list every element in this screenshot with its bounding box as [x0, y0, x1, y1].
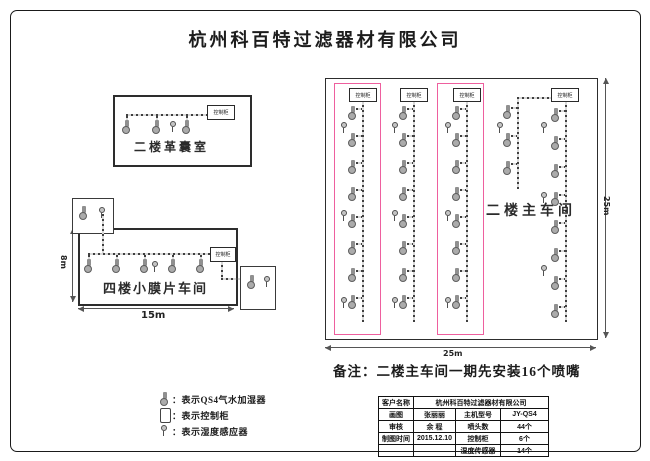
legend-item: ：表示控制柜 [158, 407, 266, 423]
drawing-canvas: 杭州科百特过滤器材有限公司 二楼革囊室 四楼小膜片车间 15m 8m 二楼主车间… [0, 0, 650, 461]
humidity-sensor-icon [392, 122, 398, 133]
humidity-sensor-icon [341, 122, 347, 133]
humidifier-nozzle-icon [182, 120, 191, 134]
humidity-sensor-icon [152, 261, 158, 272]
table-cell: 张丽丽 [414, 409, 456, 421]
legend-label: ：表示控制柜 [172, 409, 229, 422]
remark-note: 备注：二楼主车间一期先安装16个喷嘴 [333, 360, 581, 380]
equipment-box [240, 266, 276, 310]
dimension-line [72, 228, 73, 302]
humidity-sensor-icon [99, 207, 105, 218]
drawing-title: 杭州科百特过滤器材有限公司 [0, 26, 650, 52]
humidifier-nozzle-icon [551, 136, 560, 150]
humidity-sensor-icon [541, 265, 547, 276]
main-workshop-width-dim: 25m [443, 349, 462, 358]
customer-value-cell: 杭州科百特过滤器材有限公司 [414, 397, 549, 409]
pipe [102, 214, 104, 254]
control-cabinet: 控制柜 [400, 88, 428, 102]
humidifier-nozzle-icon [348, 106, 357, 120]
humidifier-nozzle-icon [79, 206, 88, 220]
title-block-table: 客户名称 杭州科百特过滤器材有限公司 画图 张丽丽 主机型号 JY-QS4 审核… [378, 396, 549, 457]
humidifier-nozzle-icon [399, 160, 408, 174]
dimension-line [325, 347, 596, 348]
pipe [362, 100, 364, 322]
main-workshop-height-dim: 25m [602, 196, 611, 215]
humidifier-nozzle-icon [348, 241, 357, 255]
pipe [517, 97, 551, 99]
table-cell: 喷头数 [456, 421, 501, 433]
humidifier-nozzle-icon [140, 259, 149, 273]
humidifier-nozzle-icon [551, 164, 560, 178]
humidifier-nozzle-icon [348, 187, 357, 201]
humidifier-nozzle-icon [399, 187, 408, 201]
control-cabinet: 控制柜 [207, 105, 235, 120]
humidifier-nozzle-icon [551, 304, 560, 318]
humidity-sensor-icon [341, 297, 347, 308]
table-cell: 画图 [379, 409, 414, 421]
humidifier-nozzle-icon [399, 268, 408, 282]
humidifier-nozzle-icon [503, 133, 512, 147]
table-cell: JY-QS4 [501, 409, 549, 421]
pipe [413, 100, 415, 322]
humidifier-nozzle-icon [551, 248, 560, 262]
customer-label-cell: 客户名称 [379, 397, 414, 409]
control-cabinet: 控制柜 [453, 88, 481, 102]
humidity-sensor-icon [392, 297, 398, 308]
humidifier-nozzle-icon [452, 214, 461, 228]
table-cell: 6个 [501, 433, 549, 445]
humidity-sensor-icon [445, 122, 451, 133]
humidifier-nozzle-icon [112, 259, 121, 273]
humidity-sensor-icon [392, 210, 398, 221]
humidifier-nozzle-icon [84, 259, 93, 273]
humidity-sensor-icon [541, 192, 547, 203]
humidity-sensor-icon [341, 210, 347, 221]
humidifier-nozzle-icon [551, 220, 560, 234]
membrane-room-height-dim: 8m [59, 255, 68, 269]
humidifier-nozzle-icon [348, 295, 357, 309]
control-cabinet: 控制柜 [210, 247, 236, 262]
humidifier-nozzle-icon [160, 392, 169, 406]
humidity-sensor-icon [161, 425, 167, 436]
room-membrane-label: 四楼小膜片车间 [103, 278, 208, 297]
table-cell: 余 程 [414, 421, 456, 433]
dimension-line [78, 308, 234, 309]
humidifier-nozzle-icon [452, 160, 461, 174]
legend-item: ：表示QS4气水加湿器 [158, 391, 266, 407]
humidifier-nozzle-icon [503, 105, 512, 119]
table-cell: 2015.12.10 [414, 433, 456, 445]
table-cell: 审核 [379, 421, 414, 433]
table-cell: 14个 [501, 445, 549, 457]
legend-label: ：表示QS4气水加湿器 [172, 393, 266, 406]
table-cell: 湿度传感器 [456, 445, 501, 457]
humidifier-nozzle-icon [348, 268, 357, 282]
humidifier-nozzle-icon [452, 241, 461, 255]
table-cell: 控制柜 [456, 433, 501, 445]
humidity-sensor-icon [445, 297, 451, 308]
humidifier-nozzle-icon [348, 160, 357, 174]
humidifier-nozzle-icon [399, 214, 408, 228]
humidifier-nozzle-icon [348, 214, 357, 228]
humidifier-nozzle-icon [152, 120, 161, 134]
pipe [517, 97, 519, 189]
table-cell: 制图时间 [379, 433, 414, 445]
humidifier-nozzle-icon [452, 295, 461, 309]
humidifier-nozzle-icon [399, 133, 408, 147]
humidifier-nozzle-icon [452, 133, 461, 147]
humidity-sensor-icon [170, 121, 176, 132]
humidifier-nozzle-icon [452, 187, 461, 201]
humidifier-nozzle-icon [399, 295, 408, 309]
humidifier-nozzle-icon [551, 192, 560, 206]
table-cell [414, 445, 456, 457]
table-cell: 主机型号 [456, 409, 501, 421]
room-bladder-label: 二楼革囊室 [134, 138, 209, 155]
humidifier-nozzle-icon [122, 120, 131, 134]
legend-label: ：表示湿度感应器 [172, 425, 248, 438]
pipe [126, 114, 207, 116]
humidifier-nozzle-icon [399, 241, 408, 255]
humidifier-nozzle-icon [551, 108, 560, 122]
humidifier-nozzle-icon [503, 161, 512, 175]
legend-item: ：表示湿度感应器 [158, 423, 266, 439]
humidifier-nozzle-icon [247, 275, 256, 289]
humidifier-nozzle-icon [452, 106, 461, 120]
room-main-workshop-label: 二楼主车间 [486, 200, 576, 220]
humidity-sensor-icon [497, 122, 503, 133]
table-cell: 44个 [501, 421, 549, 433]
humidifier-nozzle-icon [348, 133, 357, 147]
humidity-sensor-icon [541, 122, 547, 133]
table-cell [379, 445, 414, 457]
humidifier-nozzle-icon [452, 268, 461, 282]
humidifier-nozzle-icon [551, 276, 560, 290]
humidity-sensor-icon [264, 276, 270, 287]
humidifier-nozzle-icon [399, 106, 408, 120]
membrane-room-width-dim: 15m [141, 310, 165, 321]
humidity-sensor-icon [445, 210, 451, 221]
control-cabinet: 控制柜 [349, 88, 377, 102]
pipe [88, 253, 210, 255]
control-cabinet-icon [160, 408, 171, 423]
humidifier-nozzle-icon [196, 259, 205, 273]
pipe [221, 260, 223, 278]
pipe [466, 100, 468, 322]
legend: ：表示QS4气水加湿器 ：表示控制柜 ：表示湿度感应器 [158, 391, 266, 439]
control-cabinet: 控制柜 [551, 88, 579, 102]
humidifier-nozzle-icon [168, 259, 177, 273]
